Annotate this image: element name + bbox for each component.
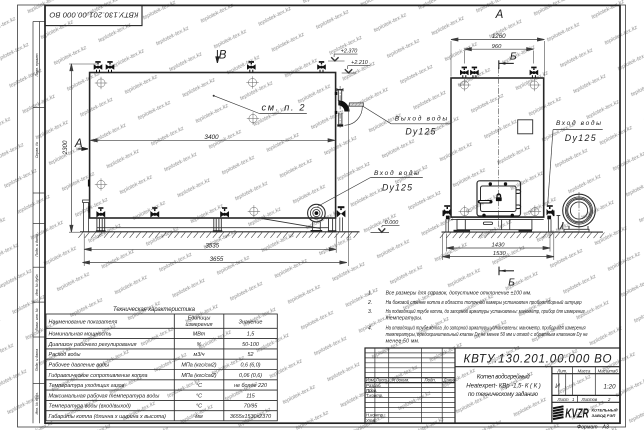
svg-text:МПа (кгс/см2): МПа (кгс/см2) bbox=[181, 373, 216, 379]
svg-text:Подп. и дата: Подп. и дата bbox=[35, 234, 39, 257]
svg-text:Б: Б bbox=[508, 277, 515, 288]
svg-text:Dy125: Dy125 bbox=[565, 133, 596, 143]
svg-text:м3/ч: м3/ч bbox=[194, 352, 205, 358]
svg-text:1430: 1430 bbox=[492, 242, 506, 248]
svg-text:1260: 1260 bbox=[492, 33, 506, 40]
svg-text:1,5: 1,5 bbox=[247, 332, 255, 338]
svg-text:На отводящий трубе котла ,до з: На отводящий трубе котла ,до запорной ар… bbox=[386, 325, 586, 332]
svg-text:И: И bbox=[555, 383, 560, 390]
svg-text:3400: 3400 bbox=[204, 134, 219, 141]
svg-text:На подводящий трубе котла, д: На подводящий трубе котла, до запорной а… bbox=[386, 308, 585, 315]
svg-text:А: А bbox=[495, 9, 504, 21]
svg-text:КВТУ.130.201.00.000 ВО: КВТУ.130.201.00.000 ВО bbox=[49, 11, 138, 20]
svg-text:Техническая характеристика: Техническая характеристика bbox=[113, 307, 196, 313]
svg-text:Температура воды (вход/выход): Температура воды (вход/выход) bbox=[49, 404, 132, 410]
svg-text:Температура уходящих газов: Температура уходящих газов bbox=[49, 383, 125, 389]
svg-text:Инв. № подл.: Инв. № подл. bbox=[35, 392, 39, 414]
svg-text:115: 115 bbox=[246, 393, 256, 399]
svg-text:МПа (кгс/см2): МПа (кгс/см2) bbox=[181, 363, 216, 369]
svg-text:Вход воды: Вход воды bbox=[374, 169, 419, 177]
svg-text:KVZR: KVZR bbox=[565, 406, 589, 420]
svg-text:А3: А3 bbox=[602, 424, 609, 430]
svg-text:4.: 4. bbox=[368, 326, 372, 332]
svg-text:Все размеры для справок, допус: Все размеры для справок, допустимое откл… bbox=[386, 291, 532, 297]
svg-text:Котел водогрейный: Котел водогрейный bbox=[477, 374, 531, 381]
svg-text:Лист: Лист bbox=[557, 397, 569, 402]
svg-text:МВт: МВт bbox=[193, 332, 206, 338]
svg-text:температуры.: температуры. bbox=[386, 316, 423, 322]
svg-text:температуры, предохранительный: температуры, предохранительный клапан Dy… bbox=[386, 331, 588, 338]
svg-text:3.: 3. bbox=[368, 309, 372, 315]
svg-text:3655х1530х2370: 3655х1530х2370 bbox=[230, 414, 271, 420]
svg-text:Подп.: Подп. bbox=[425, 378, 436, 383]
svg-text:3535: 3535 bbox=[205, 243, 219, 250]
svg-text:Габариты котла (длинна х шир: Габариты котла (длинна х ширина х высота… bbox=[49, 414, 167, 420]
svg-text:2300: 2300 bbox=[62, 140, 69, 155]
svg-text:Вход воды: Вход воды bbox=[556, 119, 601, 127]
svg-text:Инв. № дубл.: Инв. № дубл. bbox=[35, 274, 39, 296]
svg-text:Значение: Значение bbox=[239, 320, 263, 326]
svg-text:50-100: 50-100 bbox=[242, 342, 259, 348]
svg-text:Номинальная мощность: Номинальная мощность bbox=[49, 332, 112, 338]
svg-text:Дата: Дата bbox=[443, 378, 456, 383]
svg-text:70/95: 70/95 bbox=[244, 404, 258, 410]
svg-text:Справ. №: Справ. № bbox=[35, 142, 39, 158]
svg-text:Масса: Масса bbox=[578, 368, 591, 373]
svg-text:2.: 2. bbox=[367, 300, 372, 306]
svg-text:0.000: 0.000 bbox=[385, 220, 399, 226]
svg-text:Масштаб: Масштаб bbox=[598, 368, 619, 373]
svg-text:Подп. и дата: Подп. и дата bbox=[35, 349, 39, 372]
svg-text:1530: 1530 bbox=[493, 251, 507, 257]
svg-text:На боковой стенке котла в обла: На боковой стенке котла в области топочн… bbox=[386, 299, 582, 306]
svg-text:КВТУ.130.201.00.000 ВО: КВТУ.130.201.00.000 ВО bbox=[464, 352, 612, 365]
svg-text:Выход воды: Выход воды bbox=[395, 115, 448, 123]
svg-text:мм: мм bbox=[195, 414, 203, 420]
svg-text:по техническому заданию: по техническому заданию bbox=[468, 391, 538, 398]
svg-text:В: В bbox=[219, 50, 227, 62]
svg-text:ЗАВОД РЭП: ЗАВОД РЭП bbox=[592, 413, 616, 418]
svg-text:Б: Б bbox=[510, 51, 517, 62]
svg-text:0,6 (6,0): 0,6 (6,0) bbox=[240, 363, 260, 369]
svg-text:Гидравлическое сопротивление к: Гидравлическое сопротивление котла bbox=[49, 373, 148, 379]
svg-text:Лит.: Лит. bbox=[556, 368, 567, 373]
svg-text:960: 960 bbox=[492, 44, 502, 50]
svg-text:Листов: Листов bbox=[581, 397, 598, 402]
svg-text:Изм.: Изм. bbox=[366, 378, 375, 383]
svg-text:%: % bbox=[197, 342, 202, 348]
svg-text:не более 220: не более 220 bbox=[234, 383, 267, 389]
svg-text:°С: °С bbox=[196, 393, 202, 399]
svg-text:Лист: Лист bbox=[375, 378, 387, 383]
svg-text:52: 52 bbox=[248, 352, 254, 358]
svg-text:1.: 1. bbox=[368, 291, 372, 297]
svg-text:Утв.: Утв. bbox=[366, 418, 376, 423]
svg-text:Взам. инв. №: Взам. инв. № bbox=[35, 308, 39, 330]
svg-text:Heatexpert- КВр -1,5- К ( К ): Heatexpert- КВр -1,5- К ( К ) bbox=[466, 382, 541, 389]
svg-text:Наименование показателя: Наименование показателя bbox=[49, 320, 118, 326]
svg-text:°С: °С bbox=[196, 383, 202, 389]
svg-text:+2.370: +2.370 bbox=[341, 49, 358, 55]
svg-text:менее 50 мм.: менее 50 мм. bbox=[386, 339, 420, 345]
svg-text:°С: °С bbox=[196, 404, 202, 410]
svg-text:N докум.: N докум. bbox=[392, 378, 409, 383]
svg-text:3655: 3655 bbox=[210, 256, 224, 263]
svg-text:Dy125: Dy125 bbox=[382, 182, 412, 192]
svg-text:Диапазон рабочего регулировани: Диапазон рабочего регулирования bbox=[48, 342, 137, 348]
svg-text:0,06 (0,6): 0,06 (0,6) bbox=[239, 373, 262, 379]
svg-text:Рабочее давление воды: Рабочее давление воды bbox=[49, 363, 109, 369]
svg-text:Dy125: Dy125 bbox=[405, 127, 435, 137]
svg-text:Максимальная рабочая температу: Максимальная рабочая температура воды bbox=[49, 393, 160, 399]
svg-text:Перв. примен.: Перв. примен. bbox=[35, 53, 39, 77]
svg-text:Расход воды: Расход воды bbox=[49, 352, 81, 358]
svg-text:Формат: Формат bbox=[577, 424, 598, 430]
svg-text:Т.контр.: Т.контр. bbox=[366, 393, 383, 398]
svg-text:Единицы: Единицы bbox=[188, 316, 211, 322]
svg-text:+2.210: +2.210 bbox=[351, 60, 368, 66]
svg-text:измерения: измерения bbox=[186, 322, 213, 328]
svg-text:1:20: 1:20 bbox=[603, 384, 616, 391]
